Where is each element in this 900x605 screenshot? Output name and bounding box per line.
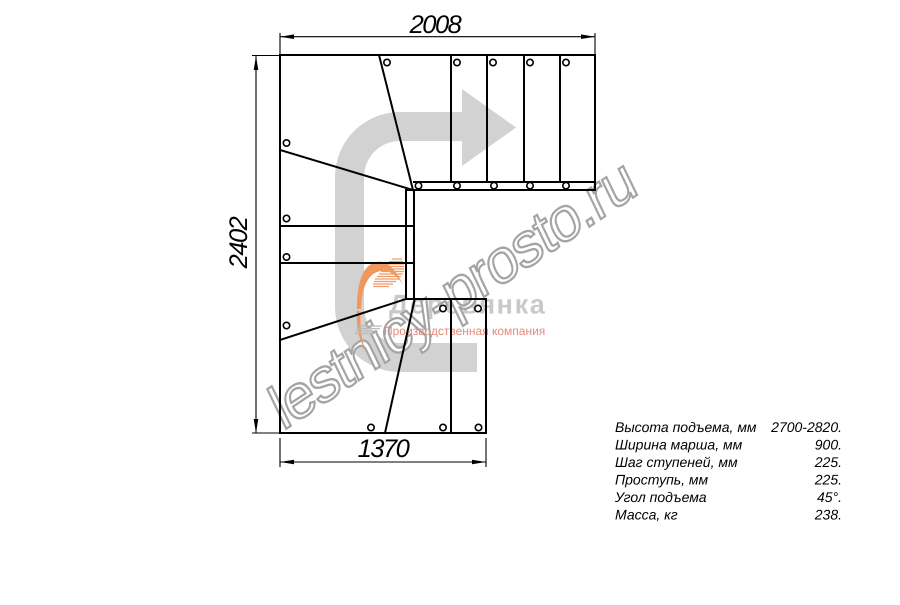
svg-text:225.: 225. — [814, 472, 842, 488]
svg-text:225.: 225. — [814, 454, 842, 470]
svg-text:2700-2820.: 2700-2820. — [770, 419, 842, 435]
svg-text:Ширина марша, мм: Ширина марша, мм — [615, 437, 743, 453]
svg-text:900.: 900. — [815, 437, 842, 453]
svg-text:Угол подъема: Угол подъема — [614, 489, 707, 505]
svg-text:238.: 238. — [814, 507, 842, 523]
svg-text:1370: 1370 — [358, 435, 410, 463]
svg-text:Высота подъема, мм: Высота подъема, мм — [615, 419, 757, 435]
svg-text:45°.: 45°. — [817, 489, 842, 505]
svg-text:2402: 2402 — [225, 216, 253, 269]
svg-text:Проступь, мм: Проступь, мм — [615, 472, 709, 488]
svg-text:2008: 2008 — [409, 11, 463, 39]
svg-text:Масса, кг: Масса, кг — [615, 507, 678, 523]
svg-text:Шаг ступеней, мм: Шаг ступеней, мм — [615, 454, 738, 470]
